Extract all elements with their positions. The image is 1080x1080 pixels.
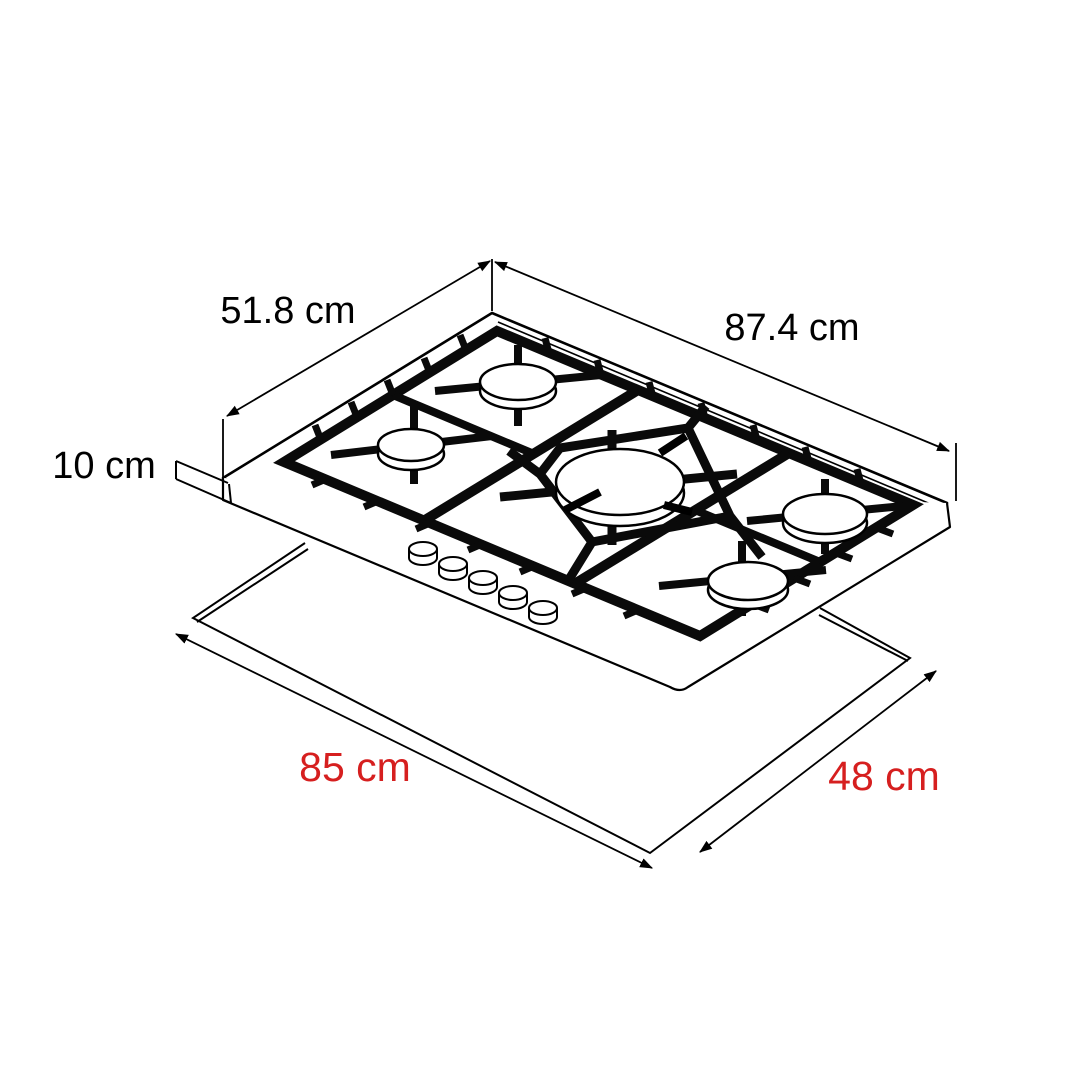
cutout-width-dimension-line bbox=[176, 634, 652, 868]
burner-back-right bbox=[783, 494, 867, 543]
width-label: 87.4 cm bbox=[724, 307, 859, 349]
cooktop-diagram-canvas: 51.8 cm 87.4 cm 10 cm 85 cm 48 cm bbox=[0, 0, 1080, 1080]
cutout-edge-double-line-right bbox=[819, 615, 908, 661]
burner-front-left bbox=[378, 429, 444, 470]
knob-4 bbox=[499, 586, 527, 609]
cutout-depth-label: 48 cm bbox=[828, 753, 940, 799]
height-label: 10 cm bbox=[52, 445, 155, 487]
knob-3 bbox=[469, 571, 497, 594]
knob-1 bbox=[409, 542, 437, 565]
cutout-edge-double-line-left bbox=[197, 549, 308, 622]
burner-back-left bbox=[480, 364, 556, 409]
cutout-width-label: 85 cm bbox=[299, 744, 411, 790]
burner-center-wok bbox=[556, 449, 684, 526]
knob-5 bbox=[529, 601, 557, 624]
burner-front-right bbox=[708, 562, 788, 609]
dimension-diagram: 51.8 cm 87.4 cm 10 cm 85 cm 48 cm bbox=[0, 0, 1080, 1080]
knob-2 bbox=[439, 557, 467, 580]
depth-label: 51.8 cm bbox=[220, 290, 355, 332]
